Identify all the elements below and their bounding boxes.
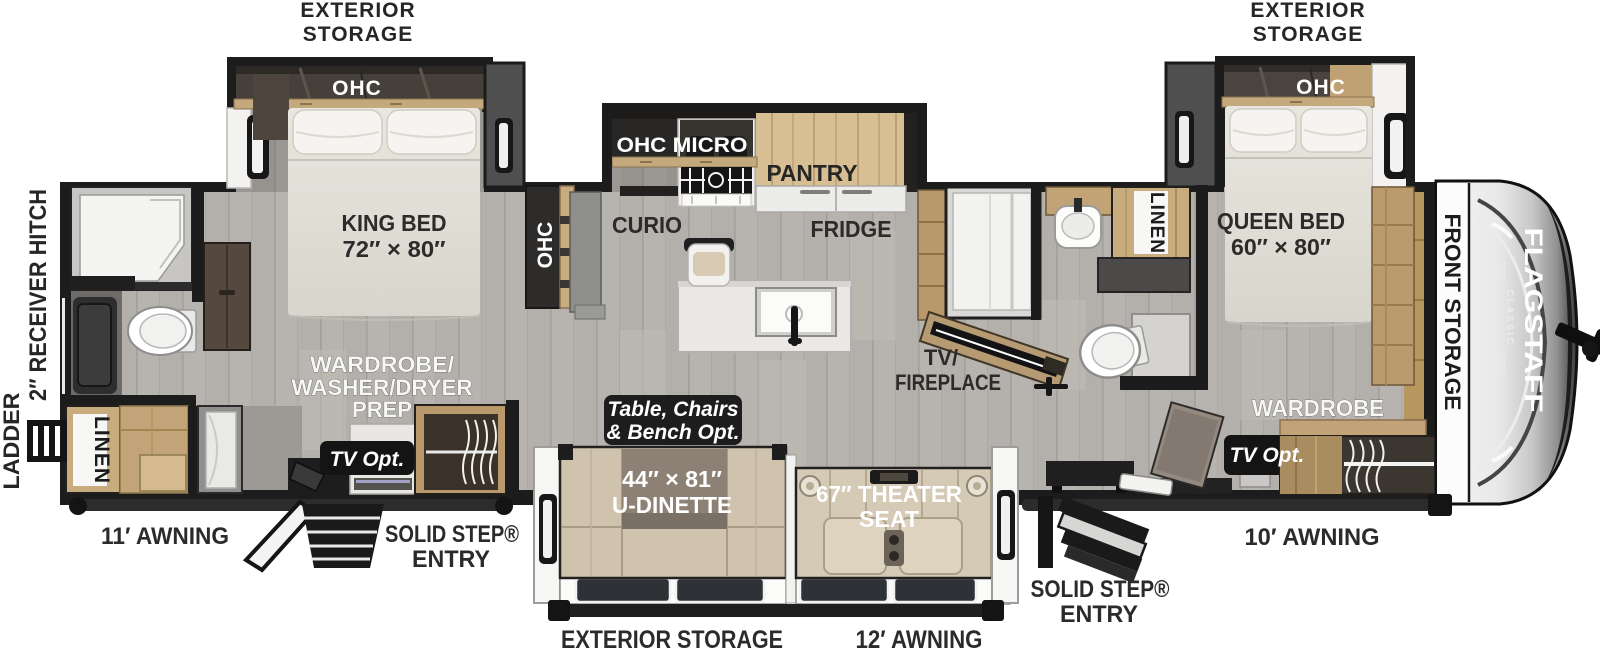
svg-text:SEAT: SEAT bbox=[859, 506, 919, 532]
svg-text:OHC: OHC bbox=[332, 77, 382, 100]
svg-text:FRONT STORAGE: FRONT STORAGE bbox=[1440, 214, 1465, 411]
svg-text:FRIDGE: FRIDGE bbox=[811, 216, 892, 242]
svg-text:FIREPLACE: FIREPLACE bbox=[895, 370, 1001, 395]
svg-text:72″ × 80″: 72″ × 80″ bbox=[343, 236, 446, 262]
svg-text:67″ THEATER: 67″ THEATER bbox=[816, 481, 962, 507]
svg-text:EXTERIOR: EXTERIOR bbox=[300, 0, 415, 22]
svg-text:WARDROBE/: WARDROBE/ bbox=[310, 352, 454, 377]
svg-text:11′ AWNING: 11′ AWNING bbox=[101, 523, 229, 550]
svg-text:OHC: OHC bbox=[1296, 76, 1346, 99]
svg-text:CLASSIC: CLASSIC bbox=[1505, 289, 1515, 346]
svg-text:TV Opt.: TV Opt. bbox=[1230, 444, 1305, 467]
svg-text:60″ × 80″: 60″ × 80″ bbox=[1231, 234, 1331, 260]
svg-text:LADDER: LADDER bbox=[0, 392, 24, 489]
svg-text:2″ RECEIVER HITCH: 2″ RECEIVER HITCH bbox=[25, 189, 52, 401]
svg-text:SOLID STEP®: SOLID STEP® bbox=[385, 521, 519, 548]
svg-text:TV/: TV/ bbox=[924, 345, 958, 370]
svg-text:STORAGE: STORAGE bbox=[1253, 23, 1363, 46]
svg-text:44″ × 81″: 44″ × 81″ bbox=[622, 466, 722, 492]
svg-text:WARDROBE: WARDROBE bbox=[1252, 395, 1384, 421]
svg-text:LINEN: LINEN bbox=[90, 416, 113, 484]
svg-text:U-DINETTE: U-DINETTE bbox=[612, 492, 732, 518]
svg-text:PREP: PREP bbox=[352, 397, 412, 422]
svg-text:KING BED: KING BED bbox=[342, 210, 447, 236]
svg-text:QUEEN BED: QUEEN BED bbox=[1217, 208, 1345, 234]
svg-text:10′ AWNING: 10′ AWNING bbox=[1245, 524, 1380, 551]
svg-text:SOLID STEP®: SOLID STEP® bbox=[1031, 576, 1170, 603]
svg-text:ENTRY: ENTRY bbox=[412, 546, 490, 573]
svg-text:OHC MICRO: OHC MICRO bbox=[617, 134, 748, 157]
svg-text:EXTERIOR: EXTERIOR bbox=[1250, 0, 1365, 22]
svg-text:Table, Chairs: Table, Chairs bbox=[607, 398, 738, 421]
svg-text:& Bench Opt.: & Bench Opt. bbox=[606, 421, 739, 444]
svg-text:OHC: OHC bbox=[534, 222, 557, 269]
svg-text:STORAGE: STORAGE bbox=[303, 23, 413, 46]
svg-text:ENTRY: ENTRY bbox=[1060, 601, 1138, 628]
svg-text:LINEN: LINEN bbox=[1146, 192, 1167, 254]
svg-text:12′ AWNING: 12′ AWNING bbox=[856, 626, 983, 650]
svg-text:TV Opt.: TV Opt. bbox=[330, 448, 405, 471]
svg-text:EXTERIOR STORAGE: EXTERIOR STORAGE bbox=[561, 626, 783, 650]
svg-text:PANTRY: PANTRY bbox=[767, 160, 858, 186]
svg-text:FLAGSTAFF: FLAGSTAFF bbox=[1519, 228, 1547, 413]
svg-text:CURIO: CURIO bbox=[612, 212, 682, 238]
